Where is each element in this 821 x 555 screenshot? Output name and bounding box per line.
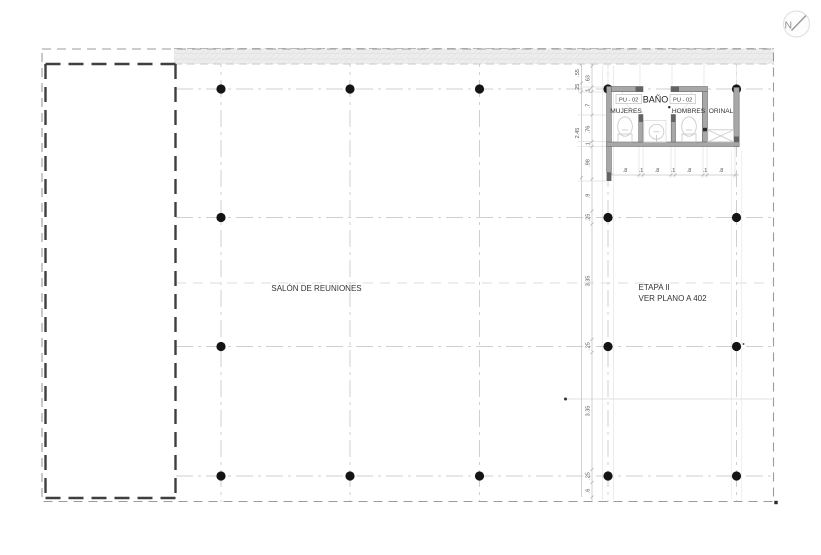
svg-text:SALÓN DE REUNIONES: SALÓN DE REUNIONES xyxy=(271,284,361,293)
svg-text:BAÑO: BAÑO xyxy=(643,95,669,105)
svg-text:MUJERES: MUJERES xyxy=(610,108,642,115)
svg-text:2.45: 2.45 xyxy=(575,128,581,139)
svg-text:.63: .63 xyxy=(586,75,592,83)
svg-text:.8: .8 xyxy=(687,168,692,174)
svg-text:ORINAL: ORINAL xyxy=(709,108,734,115)
svg-text:N: N xyxy=(785,20,793,32)
svg-text:.1: .1 xyxy=(586,142,592,147)
svg-text:.1: .1 xyxy=(671,168,676,174)
svg-text:.1: .1 xyxy=(639,168,644,174)
svg-text:HOMBRES: HOMBRES xyxy=(672,108,706,115)
svg-text:.9: .9 xyxy=(586,194,592,199)
svg-text:3.35: 3.35 xyxy=(586,406,592,417)
svg-text:.25: .25 xyxy=(586,342,592,350)
svg-text:3.35: 3.35 xyxy=(586,276,592,287)
svg-text:VER PLANO A 402: VER PLANO A 402 xyxy=(639,294,708,303)
svg-text:.1: .1 xyxy=(703,168,708,174)
svg-text:PU - 02: PU - 02 xyxy=(619,97,638,103)
svg-text:.7: .7 xyxy=(586,104,592,109)
svg-text:.25: .25 xyxy=(586,214,592,222)
svg-text:.98: .98 xyxy=(586,159,592,167)
svg-text:ETAPA II: ETAPA II xyxy=(639,283,670,292)
svg-text:.25: .25 xyxy=(586,472,592,480)
svg-text:.8: .8 xyxy=(719,168,724,174)
svg-text:.25: .25 xyxy=(575,84,581,92)
svg-text:.6: .6 xyxy=(586,489,592,494)
svg-text:.8: .8 xyxy=(623,168,628,174)
svg-text:.8: .8 xyxy=(655,168,660,174)
svg-text:.55: .55 xyxy=(575,69,581,77)
svg-text:.1: .1 xyxy=(586,89,592,94)
svg-text:.76: .76 xyxy=(586,126,592,134)
svg-text:PU - 02: PU - 02 xyxy=(673,97,692,103)
